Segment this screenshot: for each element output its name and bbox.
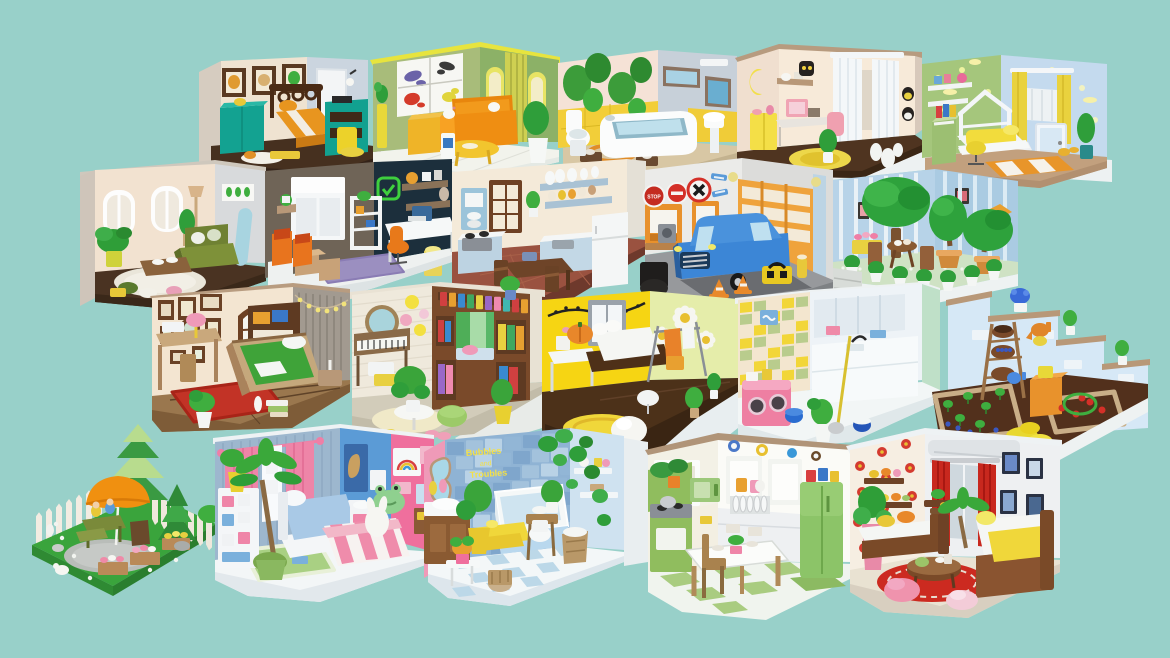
svg-text:and: and xyxy=(480,460,492,468)
svg-text:STOP: STOP xyxy=(647,195,661,201)
